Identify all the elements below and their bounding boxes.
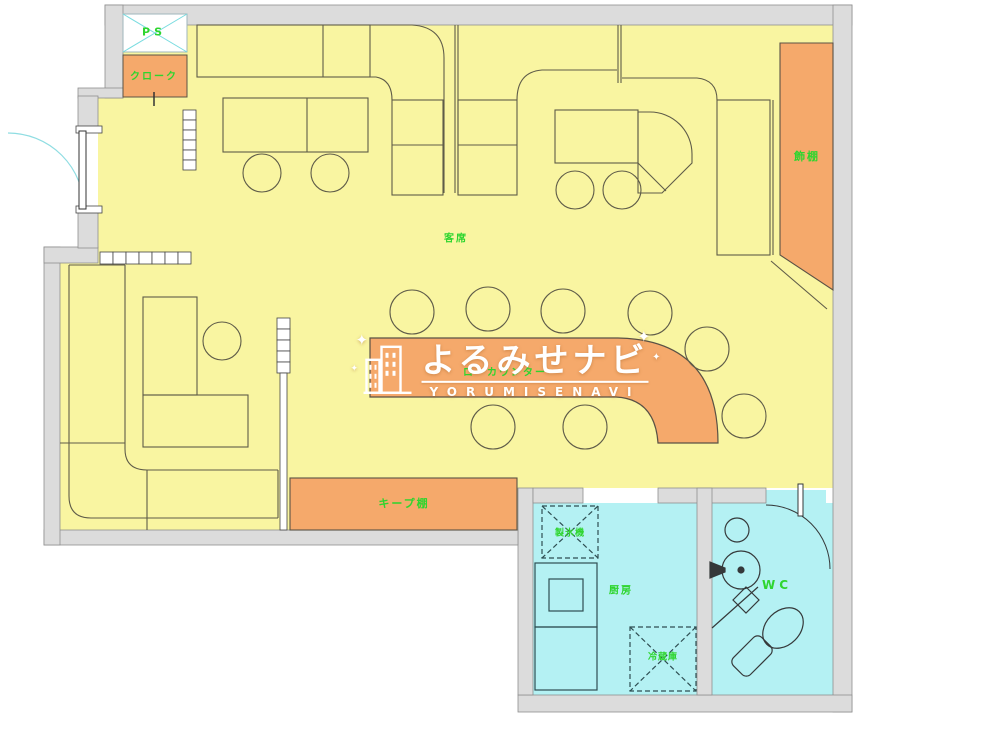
city-buildings-icon: ✦ ✦ [364,343,412,399]
label-cloak: クローク [130,68,178,83]
label-ps: PS [142,26,166,39]
label-kitchen: 厨房 [609,582,633,597]
buildings-glyph [364,343,412,399]
label-toilet: WC [762,578,792,592]
label-seating-area: 客席 [444,230,468,245]
sparkle-icon: ✦ [652,353,664,363]
label-keep-shelf: キープ棚 [378,495,429,511]
label-refrigerator: 冷蔵庫 [648,650,678,663]
label-ice-maker: 製氷機 [555,526,585,539]
sparkle-icon: ✦ [351,365,359,374]
watermark-text: よるみせナビ ✦ ✦ YORUMISENAVI [422,343,649,399]
label-display-shelf: 飾棚 [794,148,820,164]
watermark-divider [422,381,649,383]
floor-plan-stage: PS クローク 飾棚 客席 ローカウンター キープ棚 製氷機 厨房 冷蔵庫 WC… [0,0,1000,738]
sparkle-icon: ✦ [637,329,654,345]
sparkle-icon: ✦ [356,333,369,348]
brand-kana: よるみせナビ ✦ ✦ [422,343,649,380]
brand-roman: YORUMISENAVI [430,385,641,399]
watermark-logo: ✦ ✦ よるみせナビ ✦ [364,343,649,399]
